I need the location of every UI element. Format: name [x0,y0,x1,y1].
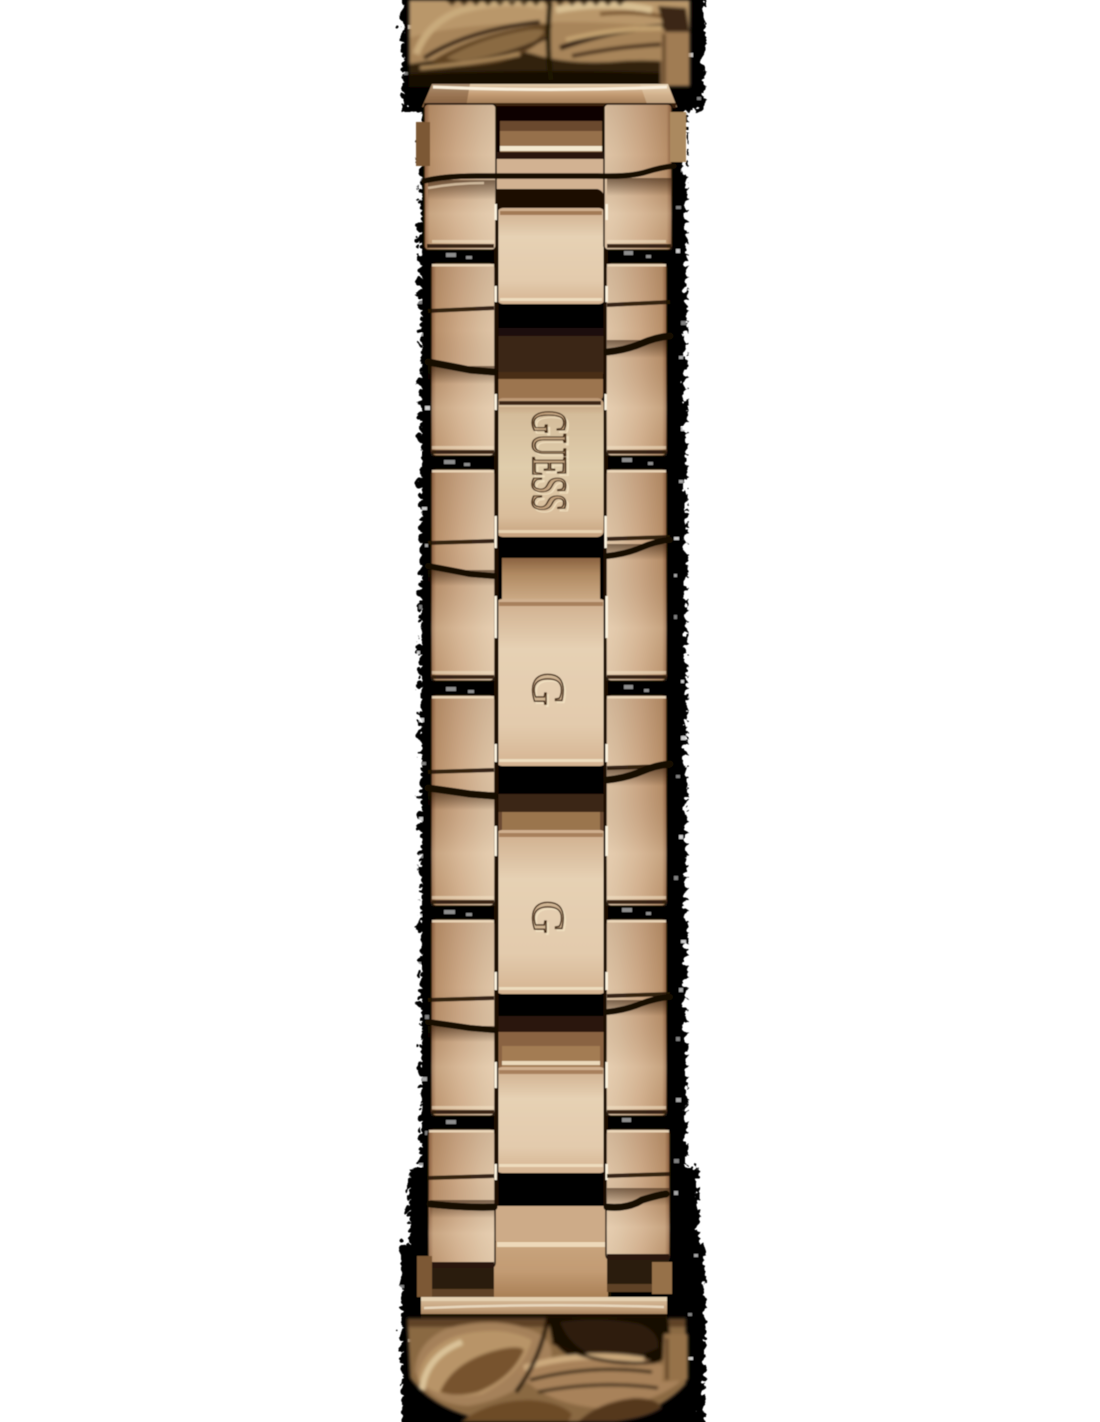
svg-text:G: G [523,900,574,933]
svg-text:G: G [523,672,574,705]
svg-text:GUESS: GUESS [522,411,578,512]
